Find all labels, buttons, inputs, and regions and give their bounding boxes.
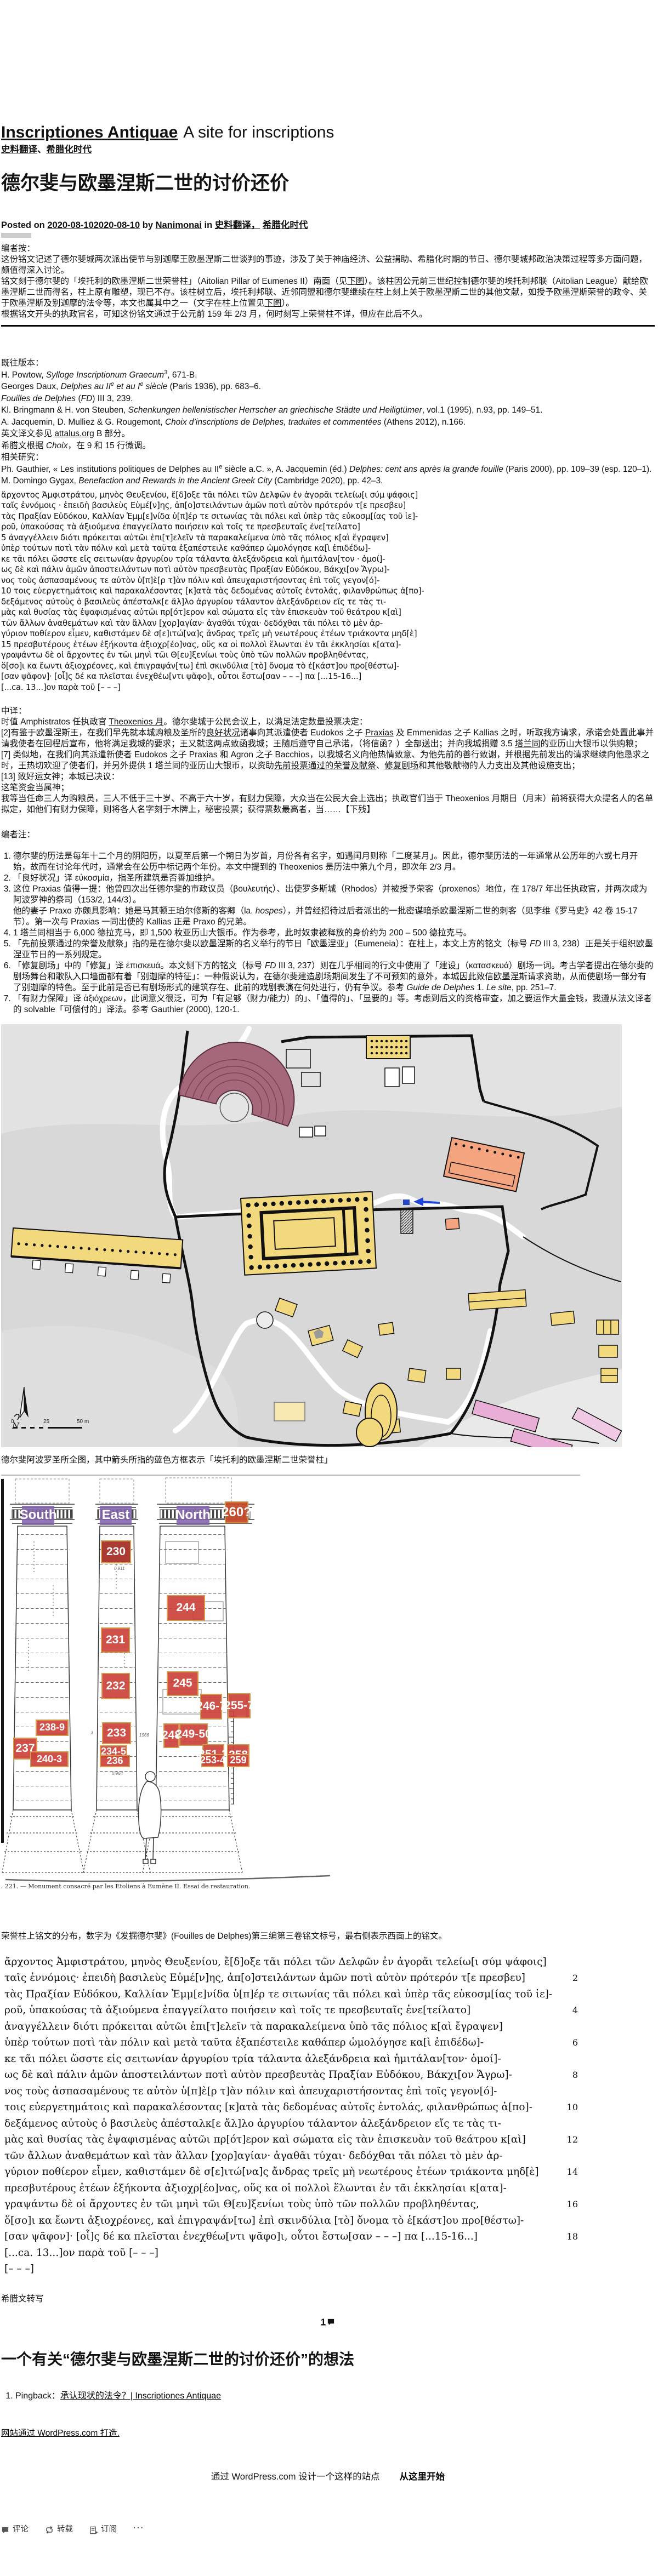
edition-item: Kl. Bringmann & H. von Steuben, Schenkun…	[1, 404, 655, 416]
greek-serif-line: ἄρχοντος Ἀμφιστράτου, μηνὸς Θευξενίου, ἔ…	[4, 1954, 578, 1970]
map-drawing: N 0 25 50 m	[1, 1024, 622, 1447]
greek-serif-line: νος τοὺς ἀσπασαμένους τε αὐτὸν ὑ[π]ὲ[ρ τ…	[4, 2083, 578, 2100]
round-monument	[257, 1312, 273, 1328]
greek-serif-line: γύριον ποθίερον εἶμεν, καθιστάμεν δὲ σ[ε…	[4, 2164, 578, 2180]
delphi-sanctuary-map: N 0 25 50 m	[1, 1024, 622, 1447]
svg-text:25: 25	[43, 1419, 50, 1425]
line-number: 8	[572, 2067, 578, 2083]
editors-note: 编者按：这份铭文记述了德尔斐城两次派出使节与别迦摩王欧墨涅斯二世谈判的事迹，涉及…	[1, 243, 655, 320]
inscription-box: 232	[101, 1673, 130, 1699]
editor-notes: 编者注： 德尔斐的历法是每年十二个月的阴阳历，以夏至后第一个朔日为岁首，月份各有…	[1, 830, 655, 1015]
post-title: 德尔斐与欧墨涅斯二世的讨价还价	[1, 171, 655, 196]
inscription-box: 231	[101, 1627, 130, 1653]
greek-line: 15 πρεσβυτέρους ἐτέων ἑξήκοντα ἀξιοχρ[έο…	[1, 639, 655, 650]
note-item: 1 塔兰同相当于 6,000 德拉克马，即 1,500 枚亚历山大银币。作为参考…	[13, 928, 655, 939]
greek-line: νος τοὺς ἀσπασαμένους τε αὐτὸν ὑ[π]ὲ[ρ τ…	[1, 575, 655, 586]
greek-serif-line: [...ca. 13...]ον παρὰ τοῦ [– – –]	[4, 2245, 578, 2261]
comment-icon	[1, 2526, 9, 2534]
edition-item: Georges Daux, Delphes au IIe et au Ie si…	[1, 381, 655, 393]
note-item: 德尔斐的历法是每年十二个月的阴阳历，以夏至后第一个朔日为岁首，月份各有名字，如遇…	[13, 851, 655, 873]
greek-line: [σαν ψᾶφον]· [οἷ]ς δέ κα πλεῖσται ἐνεχθέ…	[1, 671, 655, 682]
inscription-box: East	[100, 1506, 132, 1525]
related-studies: 相关研究： Ph. Gauthier, « Les institutions p…	[1, 452, 655, 487]
inscription-box: 259	[227, 1754, 249, 1767]
inscription-box: 255-7	[228, 1693, 251, 1718]
line-number: 6	[572, 2035, 578, 2051]
note-item: 「良好状况」译 εὐκοσμία，指圣所建筑是否善加维护。	[13, 873, 655, 884]
inscription-box: 249-50	[179, 1723, 208, 1746]
temple-of-apollo	[241, 1191, 376, 1275]
greek-text-serif: ἄρχοντος Ἀμφιστράτου, μηνὸς Θευξενίου, ἔ…	[1, 1954, 578, 2277]
greek-serif-line: [σαν ψᾶφον]· [οἷ]ς δέ κα πλεῖσται ἐνεχθέ…	[4, 2229, 578, 2245]
svg-text:λ: λ	[90, 1730, 93, 1735]
blog-page: Inscriptiones AntiquaeA site for inscrip…	[0, 0, 658, 2576]
edition-item: H. Powtow, Sylloge Inscriptionum Graecum…	[1, 369, 655, 381]
comment-bubble-icon	[327, 2318, 335, 2326]
greek-line: γραψάντω δὲ οἱ ἄρχοντες ἐν τῶι μηνὶ τῶι …	[1, 650, 655, 661]
inscription-box: 260?	[225, 1501, 248, 1523]
inscription-box: North	[177, 1506, 209, 1525]
ground-line	[5, 1876, 330, 1881]
separator-rule	[1, 325, 655, 327]
greek-serif-line: ἀναγγέλλειν διότι πρόκειται αὐτῶι ἐπι[τ]…	[4, 2019, 578, 2035]
footer-built: 网站通过 WordPress.com 打造.	[1, 2426, 655, 2438]
inscription-box: 238-9	[36, 1720, 69, 1736]
greek-text-sans: ἄρχοντος Ἀμφιστράτου, μηνὸς Θευξενίου, ἔ…	[1, 490, 655, 693]
line-number: 10	[567, 2099, 578, 2116]
note-item: 这位 Praxias 值得一提：他曾四次出任德尔斐的市政议员（βουλευτής…	[13, 884, 655, 928]
greek-serif-line: [– – –]	[4, 2261, 578, 2277]
line-number: 12	[567, 2132, 578, 2148]
greek-serif-line: μὰς καὶ θυσίας τὰς ἐψαφισμένας αὐτῶι πρ[…	[4, 2132, 578, 2148]
svg-text:50 m: 50 m	[77, 1419, 89, 1425]
inscription-box: 253-4	[201, 1754, 224, 1767]
post-meta[interactable]: Posted on 2020-08-102020-08-10 by Nanimo…	[1, 219, 655, 231]
greek-line: ὑπὲρ τούτων ποτὶ τὰν πόλιν καὶ μετὰ ταῦτ…	[1, 543, 655, 554]
line-number: 2	[572, 1970, 578, 1986]
greek-serif-line: ὅ[σο]ι κα ἔωντι ἀξιοχρέονες, καὶ ἐπιγραψ…	[4, 2213, 578, 2229]
transcription-caption: 希腊文转写	[1, 2294, 655, 2305]
comments-heading: 一个有关“德尔斐与欧墨涅斯二世的讨价还价”的想法	[1, 2349, 655, 2371]
inscription-box: 246-7	[200, 1694, 222, 1720]
inscription-box: 240-3	[30, 1751, 69, 1767]
greek-serif-line: κε τᾶι πόλει ὥσστε εἰς σειτωνίαν ἀργυρίο…	[4, 2051, 578, 2067]
site-title-link[interactable]: Inscriptiones Antiquae	[1, 123, 178, 141]
inscription-box: 236	[100, 1755, 130, 1767]
greek-line: ροῦ, ὑπακούσας τὰ ἀξιούμενα ἐπαγγείλατο …	[1, 522, 655, 533]
editions-label: 既往版本：	[1, 357, 655, 369]
greek-serif-line: ταῖς ἐννόμοις· ἐπειδὴ βασιλεὺς Εὐμέ[ν]ης…	[4, 1970, 578, 1986]
chinese-translation: 中译：时值 Amphistratos 任执政官 Theoxenios 月。德尔斐…	[1, 706, 655, 815]
svg-text:0,911: 0,911	[114, 1566, 124, 1571]
line-number: 18	[567, 2229, 578, 2245]
subscribe-icon	[89, 2526, 98, 2534]
related-item: Ph. Gauthier, « Les institutions politiq…	[1, 464, 655, 476]
reblog-action-button[interactable]: 转载	[45, 2523, 73, 2534]
greek-serif-line: πρεσβυτέρους ἐτέων ἑξήκοντα ἀξιοχρ[έο]να…	[4, 2180, 578, 2197]
site-tagline: A site for inscriptions	[183, 123, 334, 141]
cta-text: 通过 WordPress.com 设计一个这样的站点	[211, 2472, 380, 2482]
start-here-link[interactable]: 从这里开始	[400, 2472, 445, 2482]
line-number: 4	[572, 2002, 578, 2019]
svg-text:0: 0	[11, 1419, 14, 1425]
pingback-item: Pingback：承认现状的法令？| Inscriptiones Antiqua…	[15, 2388, 655, 2401]
greek-line: ως δὲ καὶ πάλιν ἁμῶν ἀποστειλάντων ποτὶ …	[1, 564, 655, 575]
wordpress-built-link[interactable]: 网站通过 WordPress.com 打造.	[1, 2429, 120, 2438]
line-number: 14	[567, 2164, 578, 2180]
note-item: 「修复剧场」中的「修复」译 ἐπισκευά。本文侧下方的铭文（标号 FD II…	[13, 961, 655, 993]
greek-line: ὅ[σο]ι κα ἔωντι ἀξιοχρέονες, καὶ ἐπιγραψ…	[1, 661, 655, 672]
greek-serif-line: γραψάντω δὲ οἱ ἄρχοντες ἐν τῶι μηνὶ τῶι …	[4, 2196, 578, 2213]
small-salmon-building	[445, 1218, 459, 1230]
note-item: 「先前投票通过的荣誉及献祭」指的是在德尔斐以欧墨涅斯的名义举行的节日「欧墨涅亚」…	[13, 939, 655, 961]
greek-serif-line: τῶν ἄλλων ἀναθεμάτων καὶ τὰν ἄλλαν [χορ]…	[4, 2148, 578, 2164]
greek-line: 10 τοις εὐεργετημάτοις καὶ παρακαλέσοντα…	[1, 586, 655, 597]
greek-line: τῶν ἄλλων ἀναθεμάτων καὶ τὰν ἄλλαν [χορ]…	[1, 618, 655, 629]
footer-cta: 通过 WordPress.com 设计一个这样的站点从这里开始	[1, 2469, 655, 2482]
greek-line: ἄρχοντος Ἀμφιστράτου, μηνὸς Θευξενίου, ἔ…	[1, 490, 655, 501]
pillar-caption-zh: 荣誉柱上铭文的分布，数字为《发掘德尔斐》(Fouilles de Delphes…	[1, 1931, 655, 1942]
greek-line: 5 ἀναγγέλλειν διότι πρόκειται αὐτῶι ἐπι[…	[1, 533, 655, 544]
lower-building	[274, 1402, 305, 1421]
edition-item: 英文译文参见 attalus.org B 部分。	[1, 428, 655, 440]
inscription-box: 233	[102, 1722, 131, 1744]
svg-text:1566: 1566	[139, 1733, 149, 1738]
inscription-box: 244	[167, 1595, 205, 1621]
pillar-figure: 0,9113340 15660,964 1,66λ Fig. 221. — Mo…	[1, 1475, 580, 1895]
comments-count-link[interactable]: 1	[1, 2317, 655, 2328]
greek-serif-line: ως δὲ καὶ πάλιν ἁμῶν ἀποστειλάντων ποτὶ …	[4, 2067, 578, 2083]
greek-serif-line: ὑπὲρ τούτων ποτὶ τὰν πόλιν καὶ μετὰ ταῦτ…	[4, 2035, 578, 2051]
note-item: 「有财力保障」译 ἀξιόχρεων，此词意义很泛，可为「有足够（财力/能力）的…	[13, 993, 655, 1015]
editions-block: 既往版本： H. Powtow, Sylloge Inscriptionum G…	[1, 357, 655, 487]
meta-divider-bar	[1, 233, 31, 238]
figure-caption-fr: Fig. 221. — Monument consacré par les Et…	[1, 1883, 250, 1890]
greek-line: γύριον ποθίερον εἶμεν, καθιστάμεν δὲ σ[ε…	[1, 629, 655, 639]
related-item: M. Domingo Gygax, Benefaction and Reward…	[1, 475, 655, 487]
greek-serif-line: τοις εὐεργετημάτοις καὶ παρακαλέσοντας […	[4, 2099, 578, 2116]
inscription-box: 230	[101, 1540, 131, 1563]
greek-line: κε τᾶι πόλει ὥσστε εἰς σειτωνίαν ἀργυρίο…	[1, 554, 655, 565]
comment-action-button[interactable]: 评论	[1, 2523, 29, 2534]
stage-building	[299, 1126, 326, 1137]
greek-line: δεξάμενος αὐτοὺς ὁ βασιλεὺς ἀπέσταλκ[ε ἄ…	[1, 597, 655, 608]
greek-serif-line: δεξάμενος αὐτοὺς ὁ βασιλεὺς ἀπέσταλκ[ε ἄ…	[4, 2116, 578, 2132]
map-caption: 德尔斐阿波罗圣所全图，其中箭头所指的蓝色方框表示「埃托利的欧墨涅斯二世荣誉柱」	[1, 1455, 655, 1466]
site-header: Inscriptiones AntiquaeA site for inscrip…	[1, 0, 655, 156]
greek-source-note: 希腊文根据 Choix，在 9 和 15 行微调。	[1, 440, 655, 452]
footer-action-bar: 评论 转载 订阅 ···	[1, 2523, 655, 2534]
greek-serif-line: τὰς Πραξίαν Εὐδόκου, Καλλίαν Ἐμμ[ε]νίδα …	[4, 1986, 578, 2003]
greek-line: τὰς Πραξίαν Εὐδόκου, Καλλίαν Ἐμμ[ε]νίδα …	[1, 511, 655, 522]
line-number: 16	[567, 2196, 578, 2213]
greek-line: [...ca. 13...]ον παρὰ τοῦ [– – –]	[1, 682, 655, 693]
pillar-south-drawing	[2, 1479, 84, 1872]
pingback-list: Pingback：承认现状的法令？| Inscriptiones Antiqua…	[1, 2388, 655, 2401]
header-category-links[interactable]: 史料翻译、希腊化时代	[1, 144, 655, 156]
svg-text:0,964: 0,964	[112, 1771, 123, 1776]
pillar-drawing: 0,9113340 15660,964 1,66λ Fig. 221. — Mo…	[1, 1476, 580, 1895]
greek-line: ταῖς ἐννόμοις · ἐπειδὴ βασιλεὺς Εὐμέ[ν]η…	[1, 500, 655, 511]
more-actions-button[interactable]: ···	[133, 2524, 145, 2533]
pingback-link[interactable]: 承认现状的法令？| Inscriptiones Antiquae	[60, 2391, 221, 2401]
edition-item: A. Jacquemin, D. Mulliez & G. Rougemont,…	[1, 416, 655, 429]
notes-label: 编者注：	[1, 830, 655, 841]
edition-item: Fouilles de Delphes (FD) III 3, 239.	[1, 393, 655, 405]
inscription-box: South	[22, 1506, 54, 1525]
inscription-box: 245	[167, 1671, 198, 1696]
greek-line: μὰς καὶ θυσίας τὰς ἐψαφισμένας αὐτῶι πρ[…	[1, 607, 655, 618]
reblog-icon	[45, 2526, 54, 2534]
subscribe-action-button[interactable]: 订阅	[89, 2523, 117, 2534]
scan-edge-bar	[1, 1479, 4, 1843]
greek-serif-line: ροῦ, ὑπακούσας τὰ ἀξιούμενα ἐπαγγείλατο …	[4, 2002, 578, 2019]
